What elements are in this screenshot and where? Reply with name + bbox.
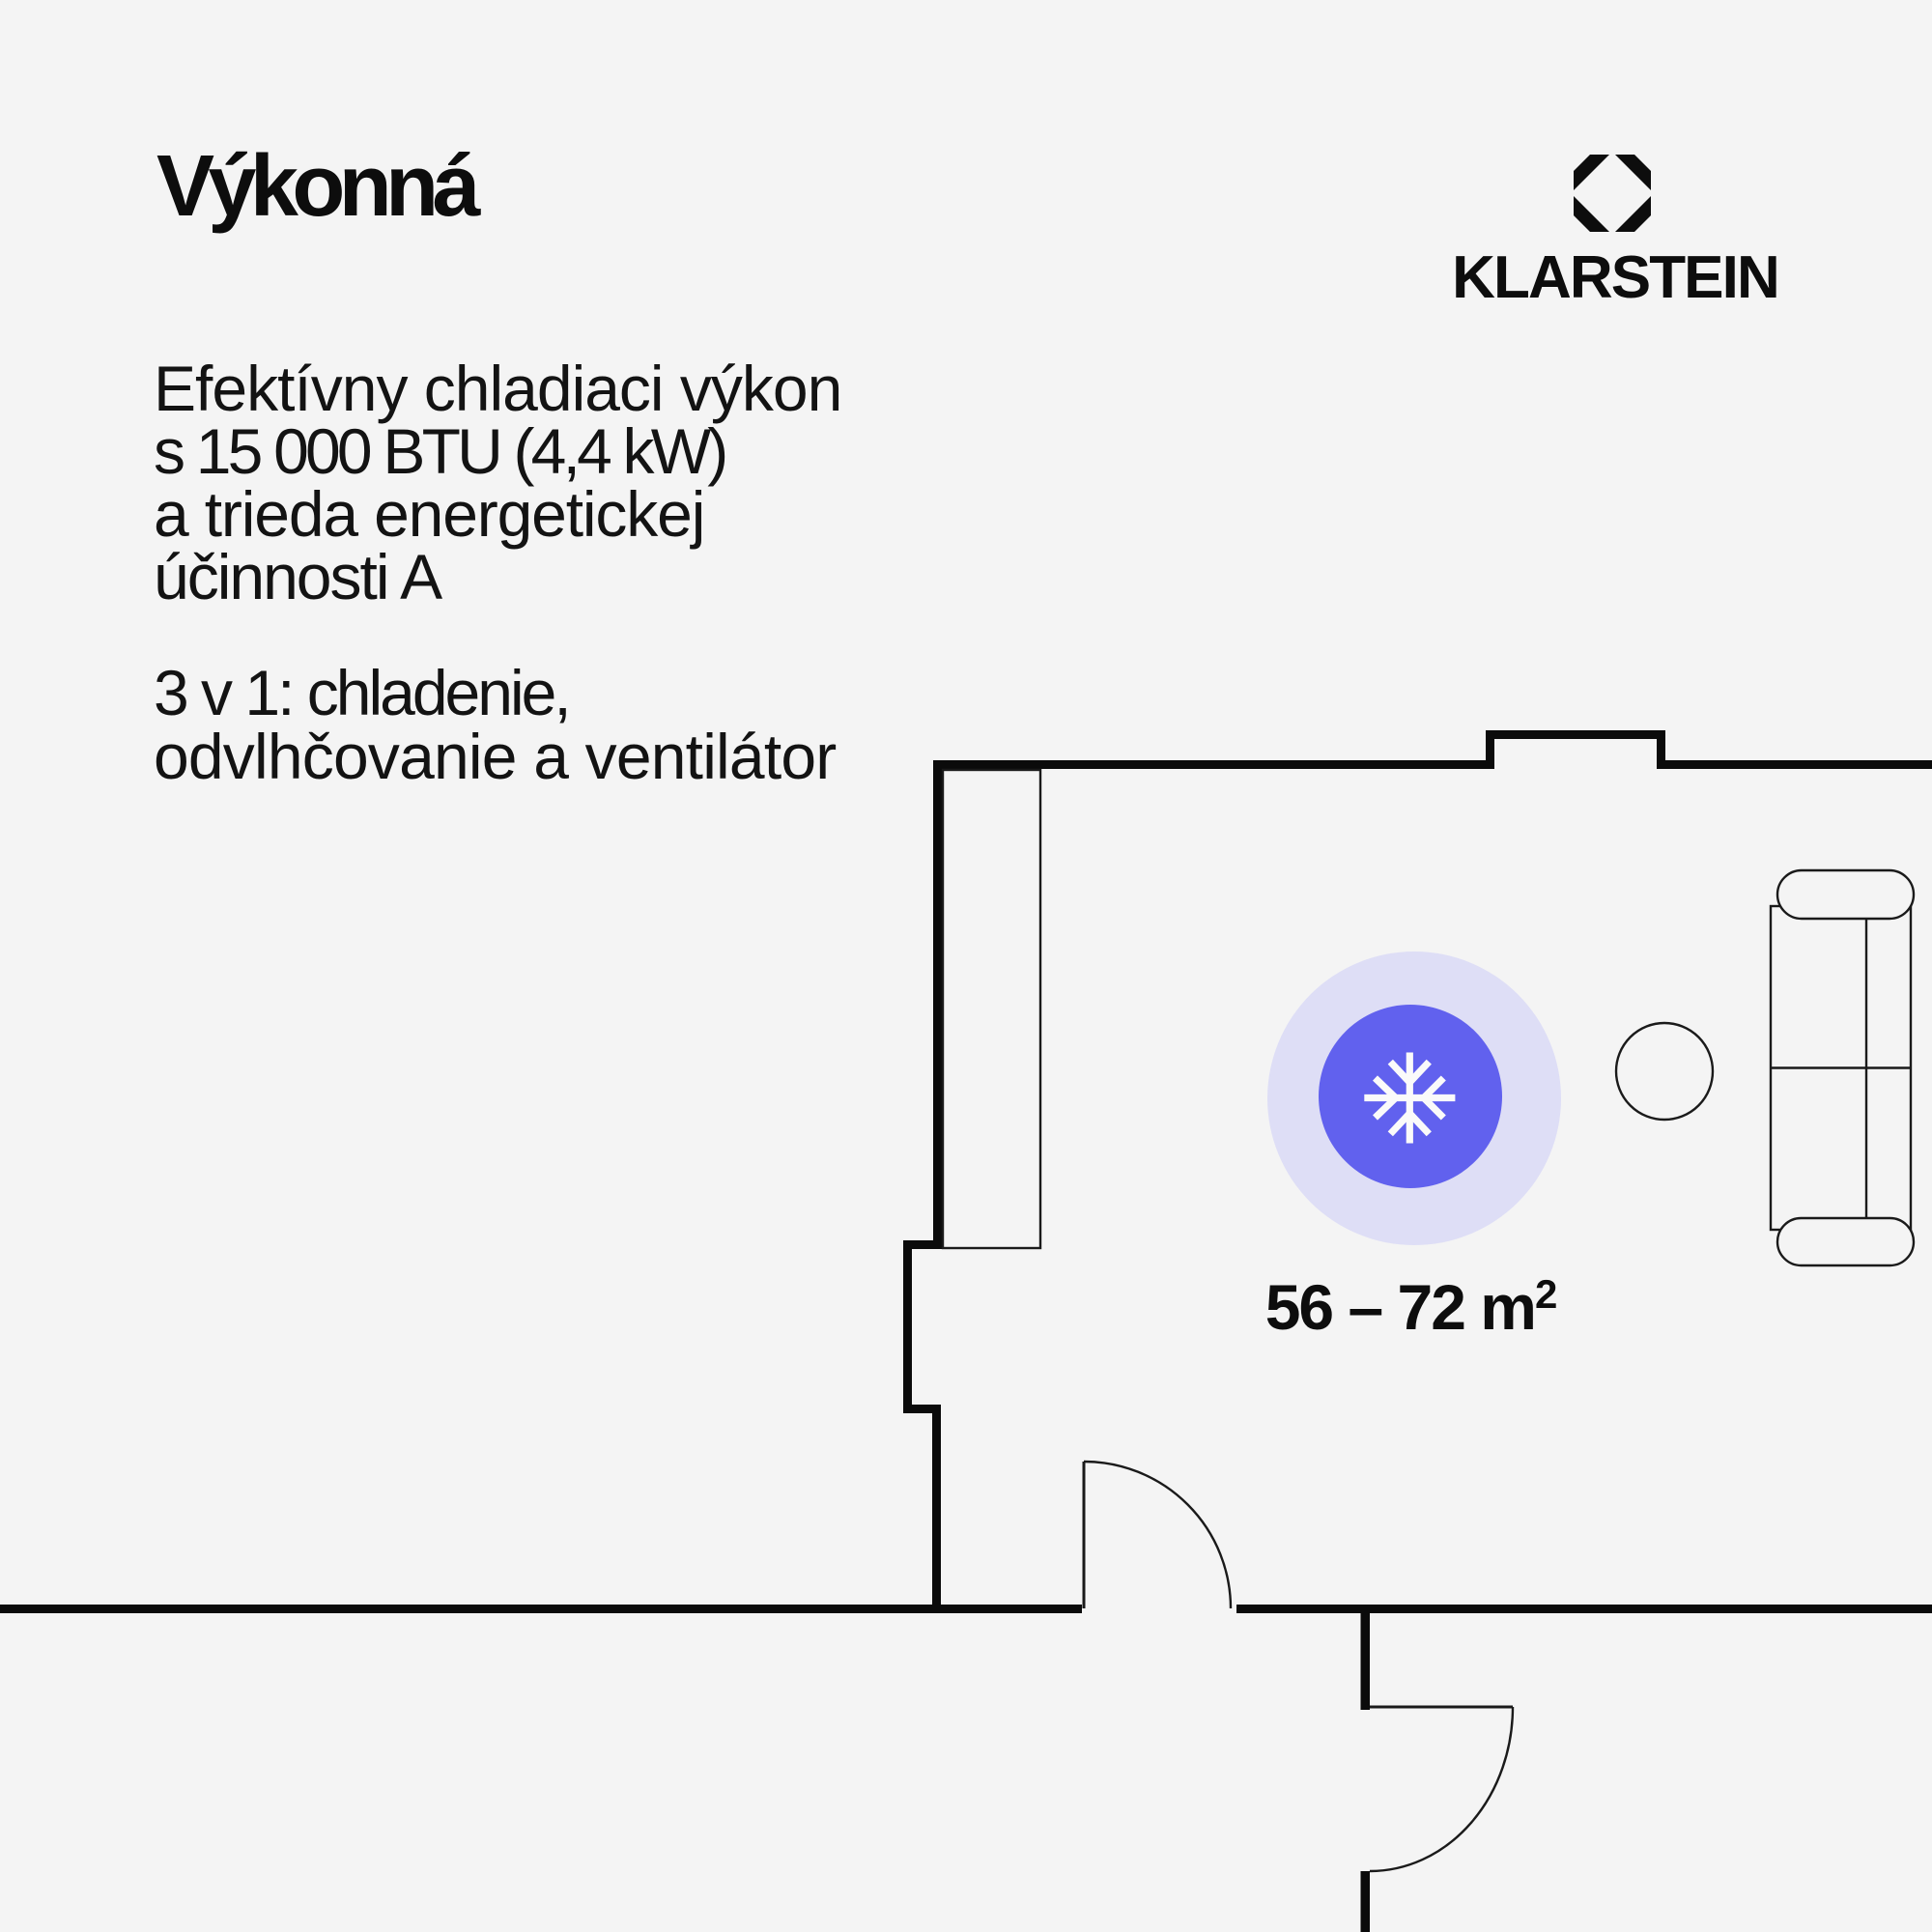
svg-text:s 15 000 BTU (4,4 kW): s 15 000 BTU (4,4 kW) (154, 415, 724, 487)
svg-text:Výkonná: Výkonná (156, 138, 481, 235)
svg-text:účinnosti A: účinnosti A (154, 541, 442, 612)
svg-text:Efektívny chladiaci výkon: Efektívny chladiaci výkon (154, 353, 841, 424)
svg-text:3 v 1: chladenie,: 3 v 1: chladenie, (154, 657, 569, 728)
svg-text:56 – 72 m2: 56 – 72 m2 (1265, 1271, 1556, 1343)
svg-text:a trieda energetickej: a trieda energetickej (154, 478, 704, 550)
svg-text:KLARSTEIN: KLARSTEIN (1452, 244, 1778, 311)
svg-text:odvlhčovanie a ventilátor: odvlhčovanie a ventilátor (154, 721, 836, 792)
